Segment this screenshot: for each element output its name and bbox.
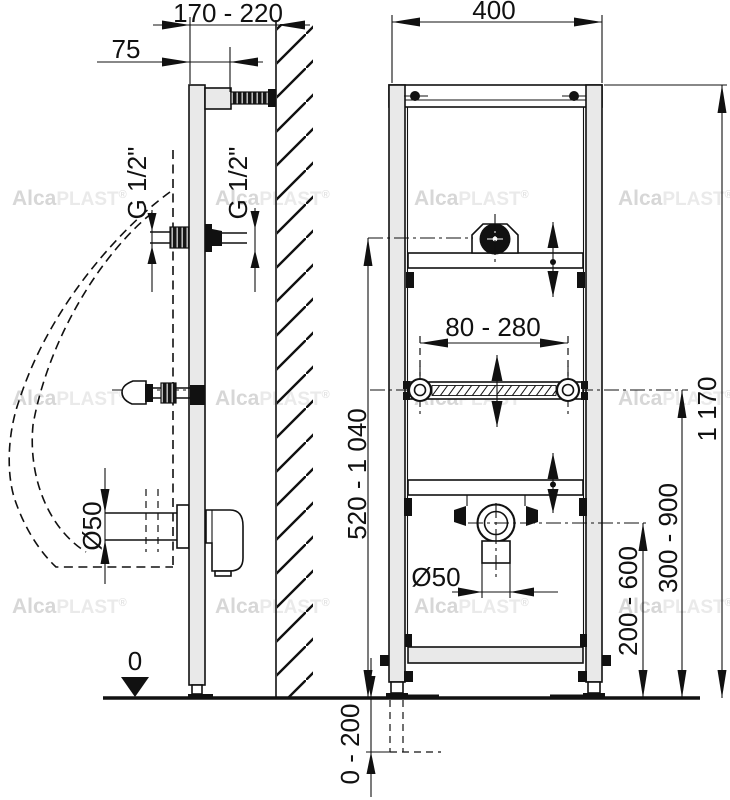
watermark: AlcaPLAST® <box>618 187 730 210</box>
inlet-fitting-rear <box>205 224 222 252</box>
foot-knob-left <box>404 671 413 682</box>
drain-elbow-outlet <box>215 571 231 576</box>
inlet-thread-front <box>170 227 189 248</box>
bottom-clip <box>405 634 412 647</box>
fixing-rail-slot <box>432 386 556 396</box>
foot-screw-right <box>602 655 611 666</box>
wall-anchor-plate <box>268 89 276 107</box>
floor-anchor-strip <box>408 695 439 698</box>
installation-frame-drawing: AlcaPLAST® AlcaPLAST® AlcaPLAST® AlcaPLA… <box>0 0 730 800</box>
dim-floor-adjust: 0 - 200 <box>335 704 365 785</box>
rail-clip <box>403 381 410 389</box>
spreader-stem <box>145 384 153 402</box>
right-foot-stem <box>588 682 600 693</box>
watermark: AlcaPLAST® <box>12 187 127 210</box>
floor-anchor-strip <box>550 695 583 698</box>
wall-anchor-rod <box>231 92 272 104</box>
drawing-canvas: AlcaPLAST® AlcaPLAST® AlcaPLAST® AlcaPLA… <box>0 0 730 800</box>
watermark: AlcaPLAST® <box>414 187 529 210</box>
dim-frame-height: 1 170 <box>692 376 722 441</box>
drain-socket-side <box>177 505 189 548</box>
bottom-clip <box>580 634 587 647</box>
watermark: AlcaPLAST® <box>12 387 127 410</box>
right-foot-plate <box>583 693 605 698</box>
profile-foot-stem <box>192 685 202 694</box>
fixing-bushing-right-bore <box>563 385 574 396</box>
wall-bracket <box>205 88 231 109</box>
drain-lug-left <box>454 506 466 526</box>
foot-knob-right <box>578 671 587 682</box>
dim-bracket-offset: 75 <box>112 34 141 64</box>
rail-clip <box>581 381 588 389</box>
profile-foot-plate <box>188 694 213 698</box>
thread-label-right: G 1/2" <box>223 147 253 220</box>
spreader-dome <box>122 381 146 404</box>
watermark: AlcaPLAST® <box>414 595 529 618</box>
floor-level-marker <box>121 677 149 697</box>
rail-clip <box>403 392 410 400</box>
dim-drain-diameter-side: Ø50 <box>77 501 107 550</box>
fixing-bushing-left-bore <box>415 385 426 396</box>
spreader-mount <box>190 385 205 405</box>
thread-label-left: G 1/2" <box>122 147 152 220</box>
dim-depth-range: 170 - 220 <box>173 0 283 28</box>
top-bolt-left <box>410 91 420 101</box>
wall-hatching <box>277 24 313 698</box>
foot-screw-left <box>380 655 389 666</box>
crossbar-clip <box>579 498 587 516</box>
dim-frame-width: 400 <box>472 0 515 25</box>
left-foot-stem <box>391 682 403 693</box>
crossbar-clip <box>404 498 412 516</box>
crossbar-clip <box>577 272 585 288</box>
top-bolt-right <box>569 91 579 101</box>
leg-extension-dashed <box>390 700 441 752</box>
bottom-member <box>408 647 583 663</box>
rail-clip <box>581 392 588 400</box>
left-rail <box>389 85 405 682</box>
spreader-thread <box>161 383 176 403</box>
adjust-dot <box>550 259 556 265</box>
dim-drain-diameter-front: Ø50 <box>411 562 460 592</box>
wall-section <box>276 20 313 698</box>
crossbar-clip <box>406 272 414 288</box>
right-rail <box>586 85 602 682</box>
dim-inlet-height: 520 - 1 040 <box>342 408 372 540</box>
left-foot-plate <box>386 693 408 698</box>
floor-level-label: 0 <box>128 646 142 676</box>
dim-fixing-span: 80 - 280 <box>445 312 540 342</box>
urinal-outlet-dashes <box>146 489 158 552</box>
dim-drain-height: 200 - 600 <box>613 546 643 656</box>
adjust-dot <box>550 482 556 488</box>
watermark: AlcaPLAST® <box>12 595 127 618</box>
dim-fixing-height: 300 - 900 <box>653 483 683 593</box>
